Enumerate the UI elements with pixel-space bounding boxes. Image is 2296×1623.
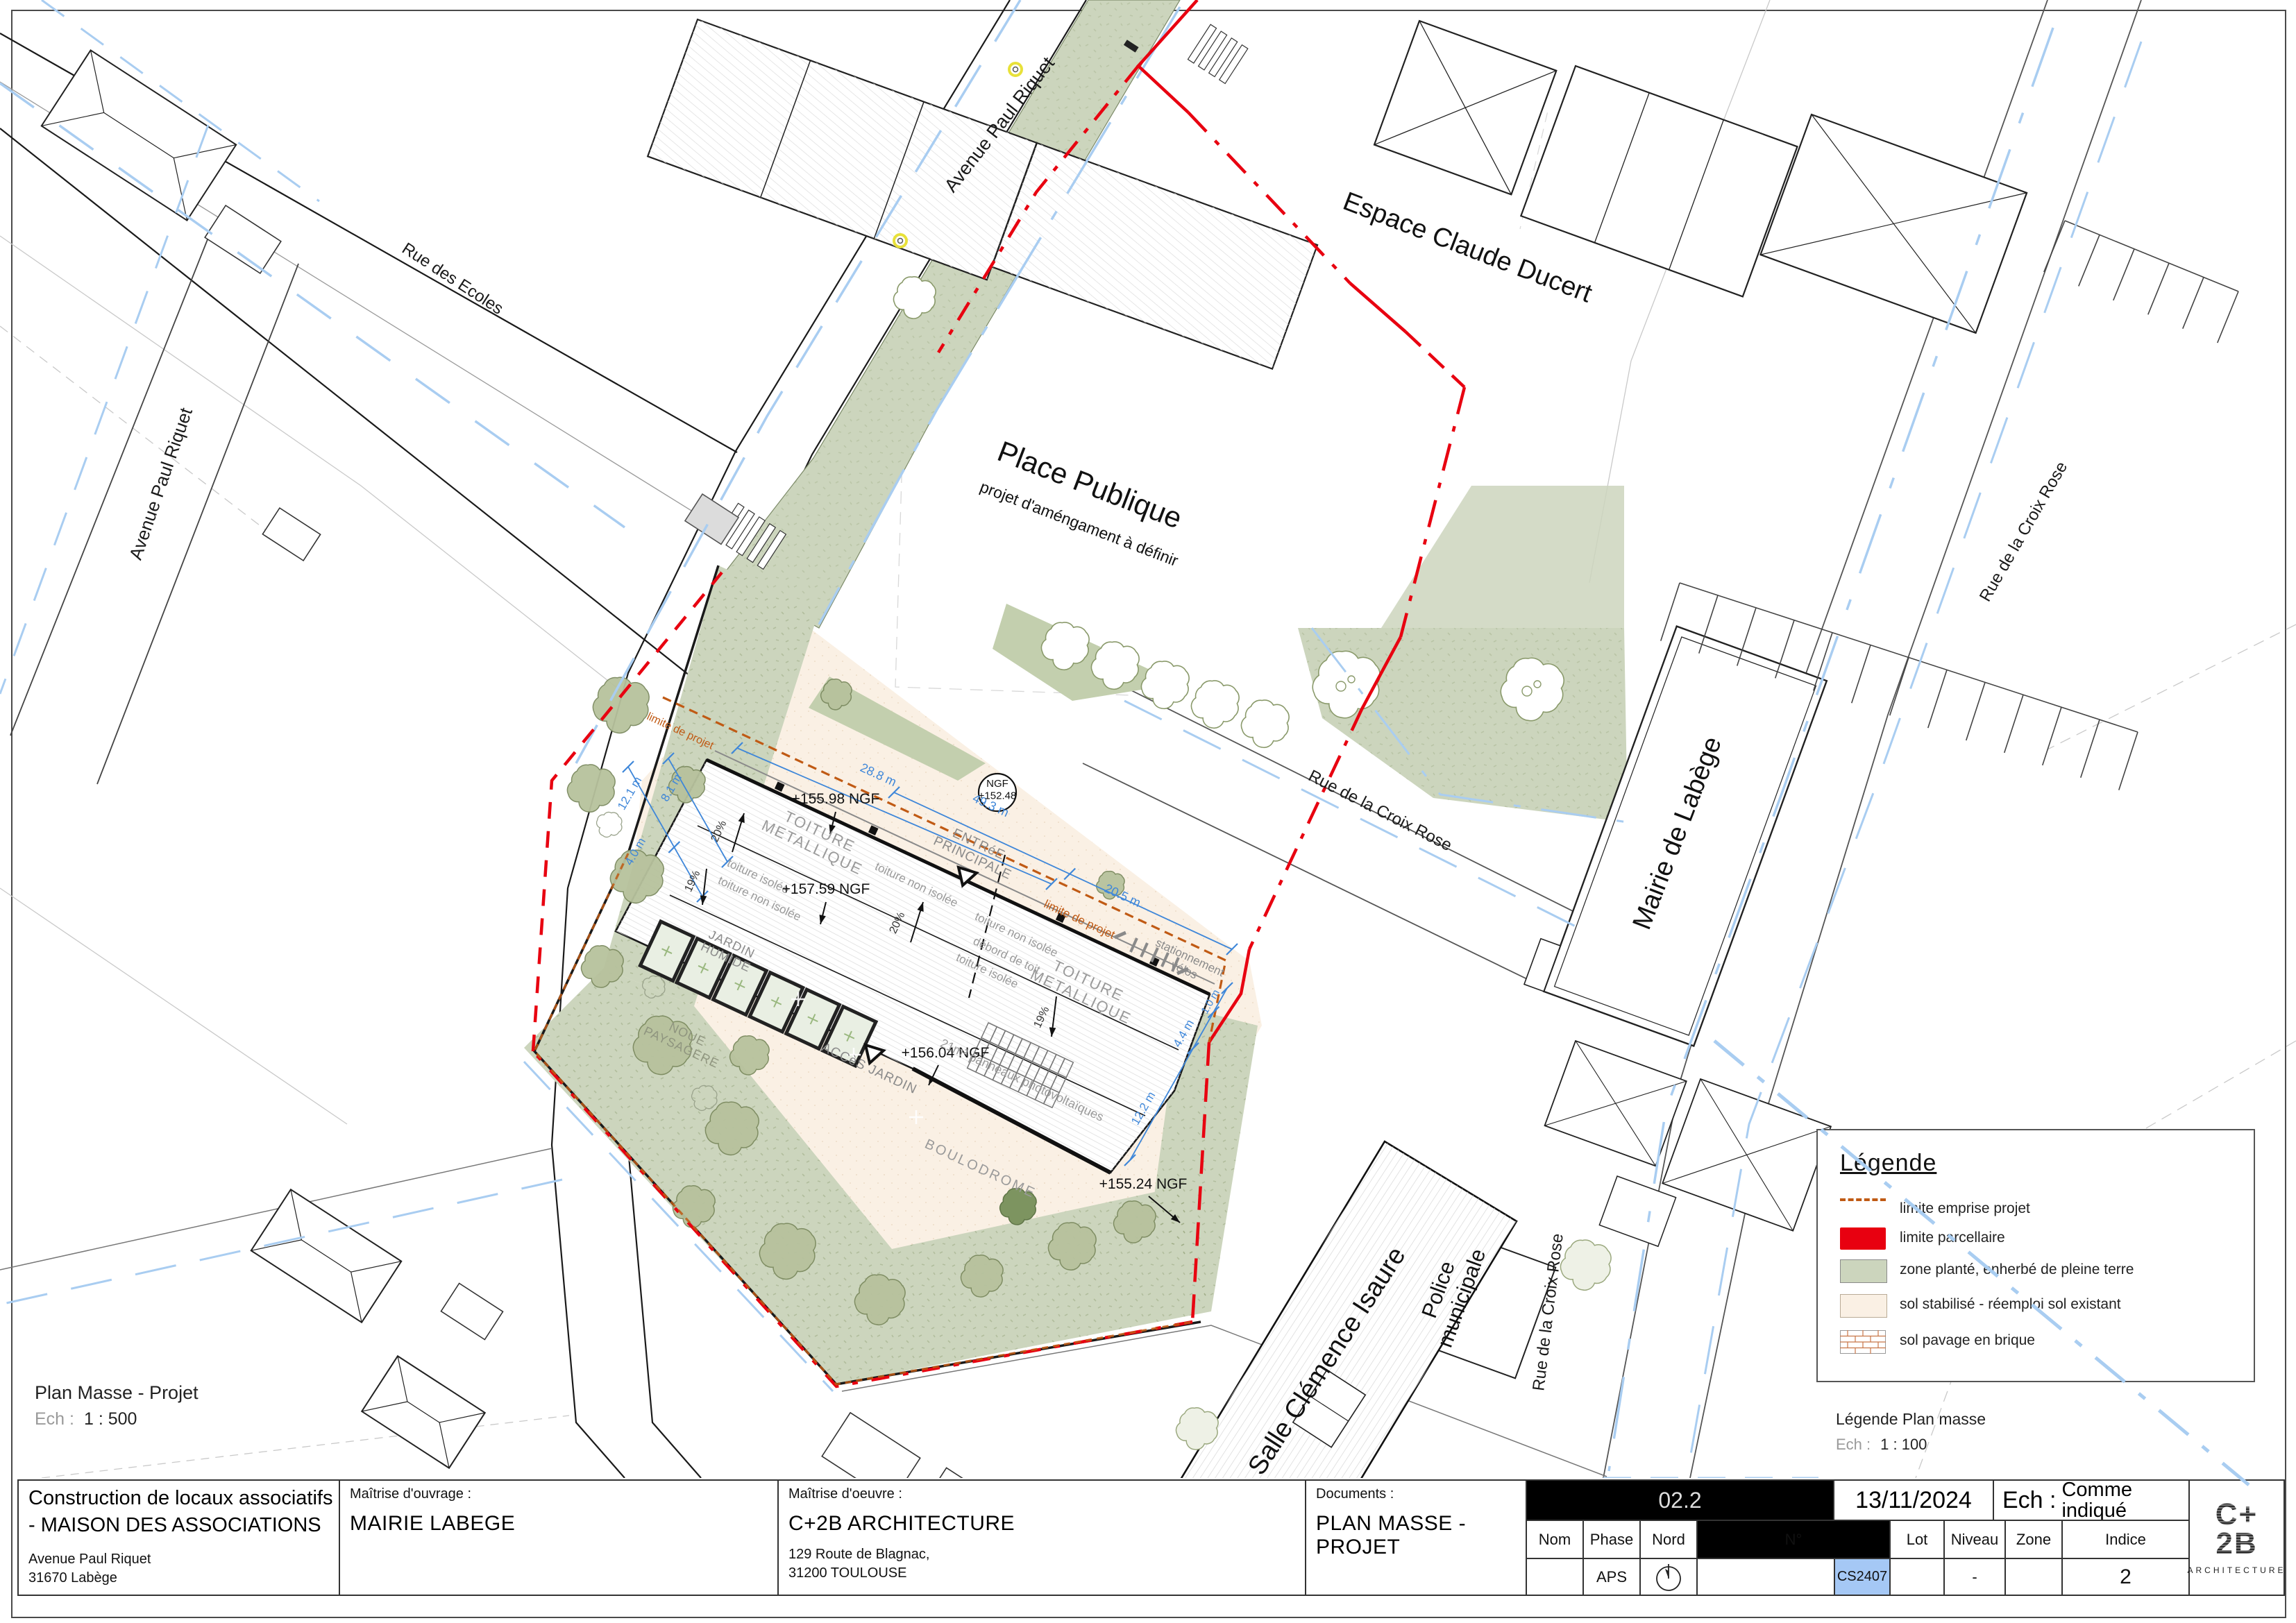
header-phase: Phase [1582,1520,1641,1559]
value-zone [2004,1558,2063,1596]
documents-label: Documents : [1316,1486,1526,1502]
header-nom: Nom [1526,1520,1584,1559]
header-nord: Nord [1639,1520,1698,1559]
plan-title: Plan Masse - Projet [35,1382,199,1404]
project-address-1: Avenue Paul Riquet [28,1552,339,1567]
legend-scale-value: 1 : 100 [1880,1436,1927,1453]
legend-box: Légende limite emprise projet limite par… [1816,1129,2255,1382]
value-numero: CS2407 [1834,1558,1891,1596]
owner-label: Maîtrise d'ouvrage : [350,1486,777,1502]
architect-label: Maîtrise d'oeuvre : [788,1486,1305,1502]
legend-footer-title: Légende Plan masse [1836,1410,1986,1429]
owner-name: MAIRIE LABEGE [350,1512,777,1536]
header-numero: N° [1696,1520,1891,1559]
value-phase: APS [1582,1558,1641,1596]
map-label-rue-des-ecoles: Rue des Ecoles [398,239,507,318]
sheet-date: 13/11/2024 [1855,1487,1972,1514]
legend-title: Légende [1840,1150,1936,1177]
title-block-owner: Maîtrise d'ouvrage : MAIRIE LABEGE [339,1479,779,1596]
project-address-2: 31670 Labège [28,1570,339,1586]
architect-name: C+2B ARCHITECTURE [788,1512,1305,1536]
plan-scale-value: 1 : 500 [84,1409,137,1429]
logo-line1: C+ [2215,1500,2258,1529]
value-nord north-arrow-icon [1639,1558,1698,1596]
legend-swatch-green [1840,1259,1887,1283]
date-box: 13/11/2024 [1833,1479,1994,1521]
architect-address-2: 31200 TOULOUSE [788,1565,1305,1581]
title-block-documents: Documents : PLAN MASSE - PROJET [1305,1479,1527,1596]
legend-footer: Légende Plan masse Ech :1 : 100 [1836,1410,1986,1454]
legend-swatch-cream [1840,1294,1887,1318]
value-indice: 2 [2061,1558,2190,1596]
title-block-project: Construction de locaux associatifs - MAI… [17,1479,340,1596]
map-label-ngf-155-98: +155.98 NGF [792,791,880,807]
value-lot [1889,1558,1945,1596]
scale-value: Comme indiqué [2061,1479,2188,1522]
scale-box: Ech : Comme indiqué [1993,1479,2190,1521]
architect-logo: C+ 2B ARCHITECTURE [2188,1479,2285,1596]
plan-scale-label: Ech : [35,1409,74,1429]
document-name: PLAN MASSE - PROJET [1316,1512,1526,1559]
header-zone: Zone [2004,1520,2063,1559]
map-label-ngf-157-59: +157.59 NGF [782,881,870,897]
espace-claude-ducert-buildings [648,19,2027,369]
architect-address-1: 129 Route de Blagnac, [788,1547,1305,1563]
header-lot: Lot [1889,1520,1945,1559]
scale-label: Ech : [2002,1487,2056,1514]
bus-shelter [685,494,738,544]
legend-scale-label: Ech : [1836,1436,1871,1453]
value-numero-spacer [1696,1558,1835,1596]
legend-swatch-brick [1840,1330,1886,1352]
map-label-ngf-155-24: +155.24 NGF [1099,1176,1188,1192]
title-block: Construction de locaux associatifs - MAI… [17,1479,2285,1596]
header-indice: Indice [2061,1520,2190,1559]
drawing-sheet: Avenue Paul RiquetAvenue Paul RiquetRue … [0,0,2296,1623]
value-nom [1526,1558,1584,1596]
logo-subtitle: ARCHITECTURE [2188,1565,2286,1575]
sheet-number: 02.2 [1658,1488,1701,1513]
value-niveau: - [1943,1558,2006,1596]
logo-line2: 2B [2215,1529,2257,1558]
project-title: Construction de locaux associatifs - MAI… [28,1485,339,1539]
header-niveau: Niveau [1943,1520,2006,1559]
sheet-number-box: 02.2 [1526,1479,1834,1521]
map-label-avenue-paul-riquet-left: Avenue Paul Riquet [125,405,196,562]
legend-swatch-solid-red [1840,1227,1886,1250]
plan-title-note: Plan Masse - Projet Ech :1 : 500 [35,1382,199,1429]
title-block-architect: Maîtrise d'oeuvre : C+2B ARCHITECTURE 12… [777,1479,1306,1596]
legend-swatch-dash-orange [1840,1198,1886,1223]
map-label-rue-croix-rose-right: Rue de la Croix Rose [1976,459,2071,605]
